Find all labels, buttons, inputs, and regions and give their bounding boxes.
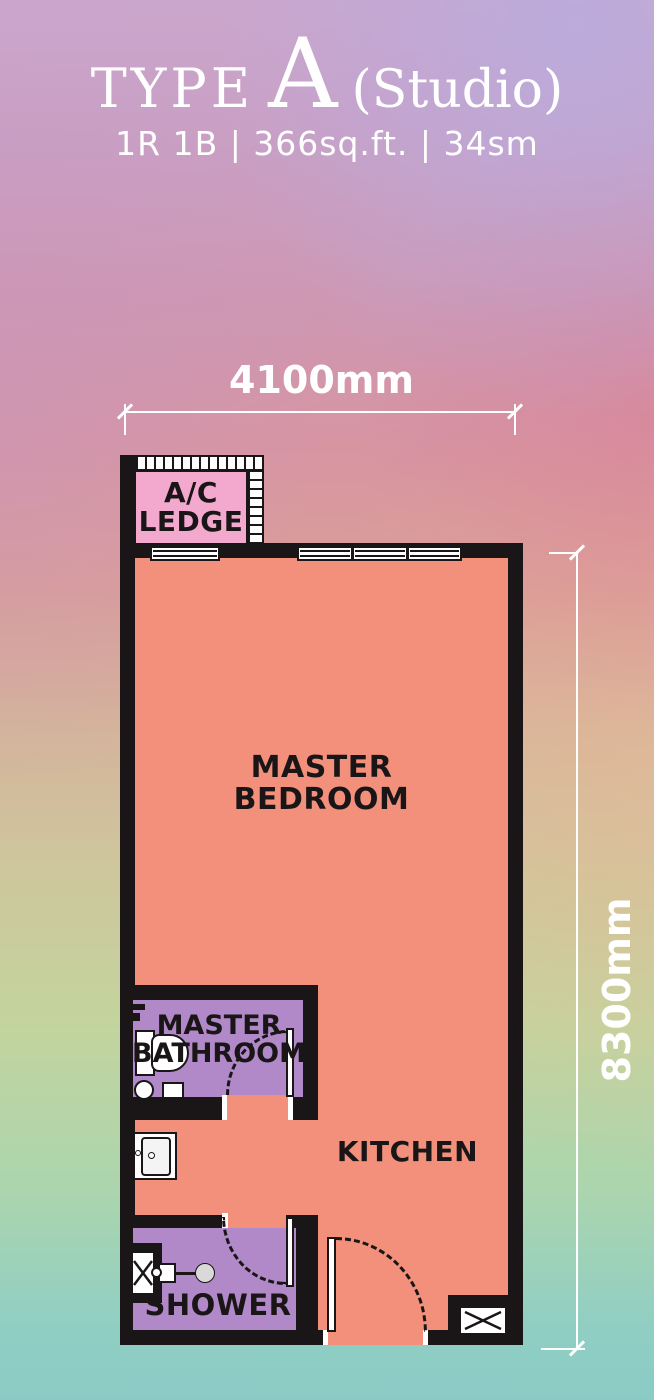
title-suffix: (Studio) bbox=[351, 60, 563, 120]
unit-specs: 1R 1B | 366sq.ft. | 34sm bbox=[0, 124, 654, 163]
kitchen-tap-icon bbox=[135, 1150, 141, 1156]
floorplan-page: TYPE A (Studio) 1R 1B | 366sq.ft. | 34sm… bbox=[0, 0, 654, 1400]
door-jamb bbox=[222, 1095, 227, 1120]
window bbox=[352, 546, 408, 561]
dimension-width-label: 4100mm bbox=[120, 358, 523, 402]
bathroom-sink-icon bbox=[134, 1080, 154, 1100]
dimension-height-line bbox=[576, 553, 578, 1350]
kitchen-label: KITCHEN bbox=[330, 1137, 485, 1166]
kitchen-tap-icon bbox=[148, 1152, 155, 1159]
toilet-roll-holder-icon bbox=[128, 1004, 145, 1010]
shaft-x-icon bbox=[459, 1306, 507, 1335]
master-bathroom-label-line2: BATHROOM bbox=[120, 1040, 318, 1068]
dimension-width-line bbox=[125, 411, 515, 413]
window bbox=[150, 546, 220, 561]
master-bathroom-label-line1: MASTER bbox=[120, 1012, 318, 1040]
shower-label: SHOWER bbox=[133, 1290, 303, 1320]
title-letter: A bbox=[268, 26, 337, 122]
shower-knob-icon bbox=[151, 1267, 162, 1278]
ac-ledge-label: A/C LEDGE bbox=[131, 478, 251, 537]
dimension-height-label: 8300mm bbox=[595, 898, 639, 1083]
master-bedroom-label-line1: MASTER bbox=[135, 752, 508, 784]
door-jamb bbox=[323, 1330, 328, 1345]
door-jamb bbox=[423, 1330, 428, 1345]
entrance-door-leaf bbox=[327, 1237, 336, 1332]
bathroom-counter-icon bbox=[162, 1082, 184, 1099]
bathroom-door-opening bbox=[227, 1095, 288, 1120]
shower-head-icon bbox=[195, 1263, 215, 1283]
entrance-opening bbox=[328, 1330, 423, 1345]
master-bedroom-label: MASTER BEDROOM bbox=[135, 752, 508, 815]
title-type: TYPE bbox=[91, 57, 254, 120]
ac-ledge-louver-top bbox=[134, 455, 264, 471]
ac-ledge-label-line1: A/C bbox=[131, 478, 251, 507]
shower-door-leaf bbox=[286, 1217, 294, 1287]
window bbox=[407, 546, 462, 561]
master-bedroom-label-line2: BEDROOM bbox=[135, 784, 508, 816]
window bbox=[297, 546, 353, 561]
page-title: TYPE A (Studio) bbox=[0, 26, 654, 122]
kitchen-sink-basin-icon bbox=[141, 1137, 171, 1176]
door-jamb bbox=[288, 1095, 293, 1120]
master-bathroom-label: MASTER BATHROOM bbox=[120, 1012, 318, 1069]
ac-ledge-label-line2: LEDGE bbox=[131, 507, 251, 536]
